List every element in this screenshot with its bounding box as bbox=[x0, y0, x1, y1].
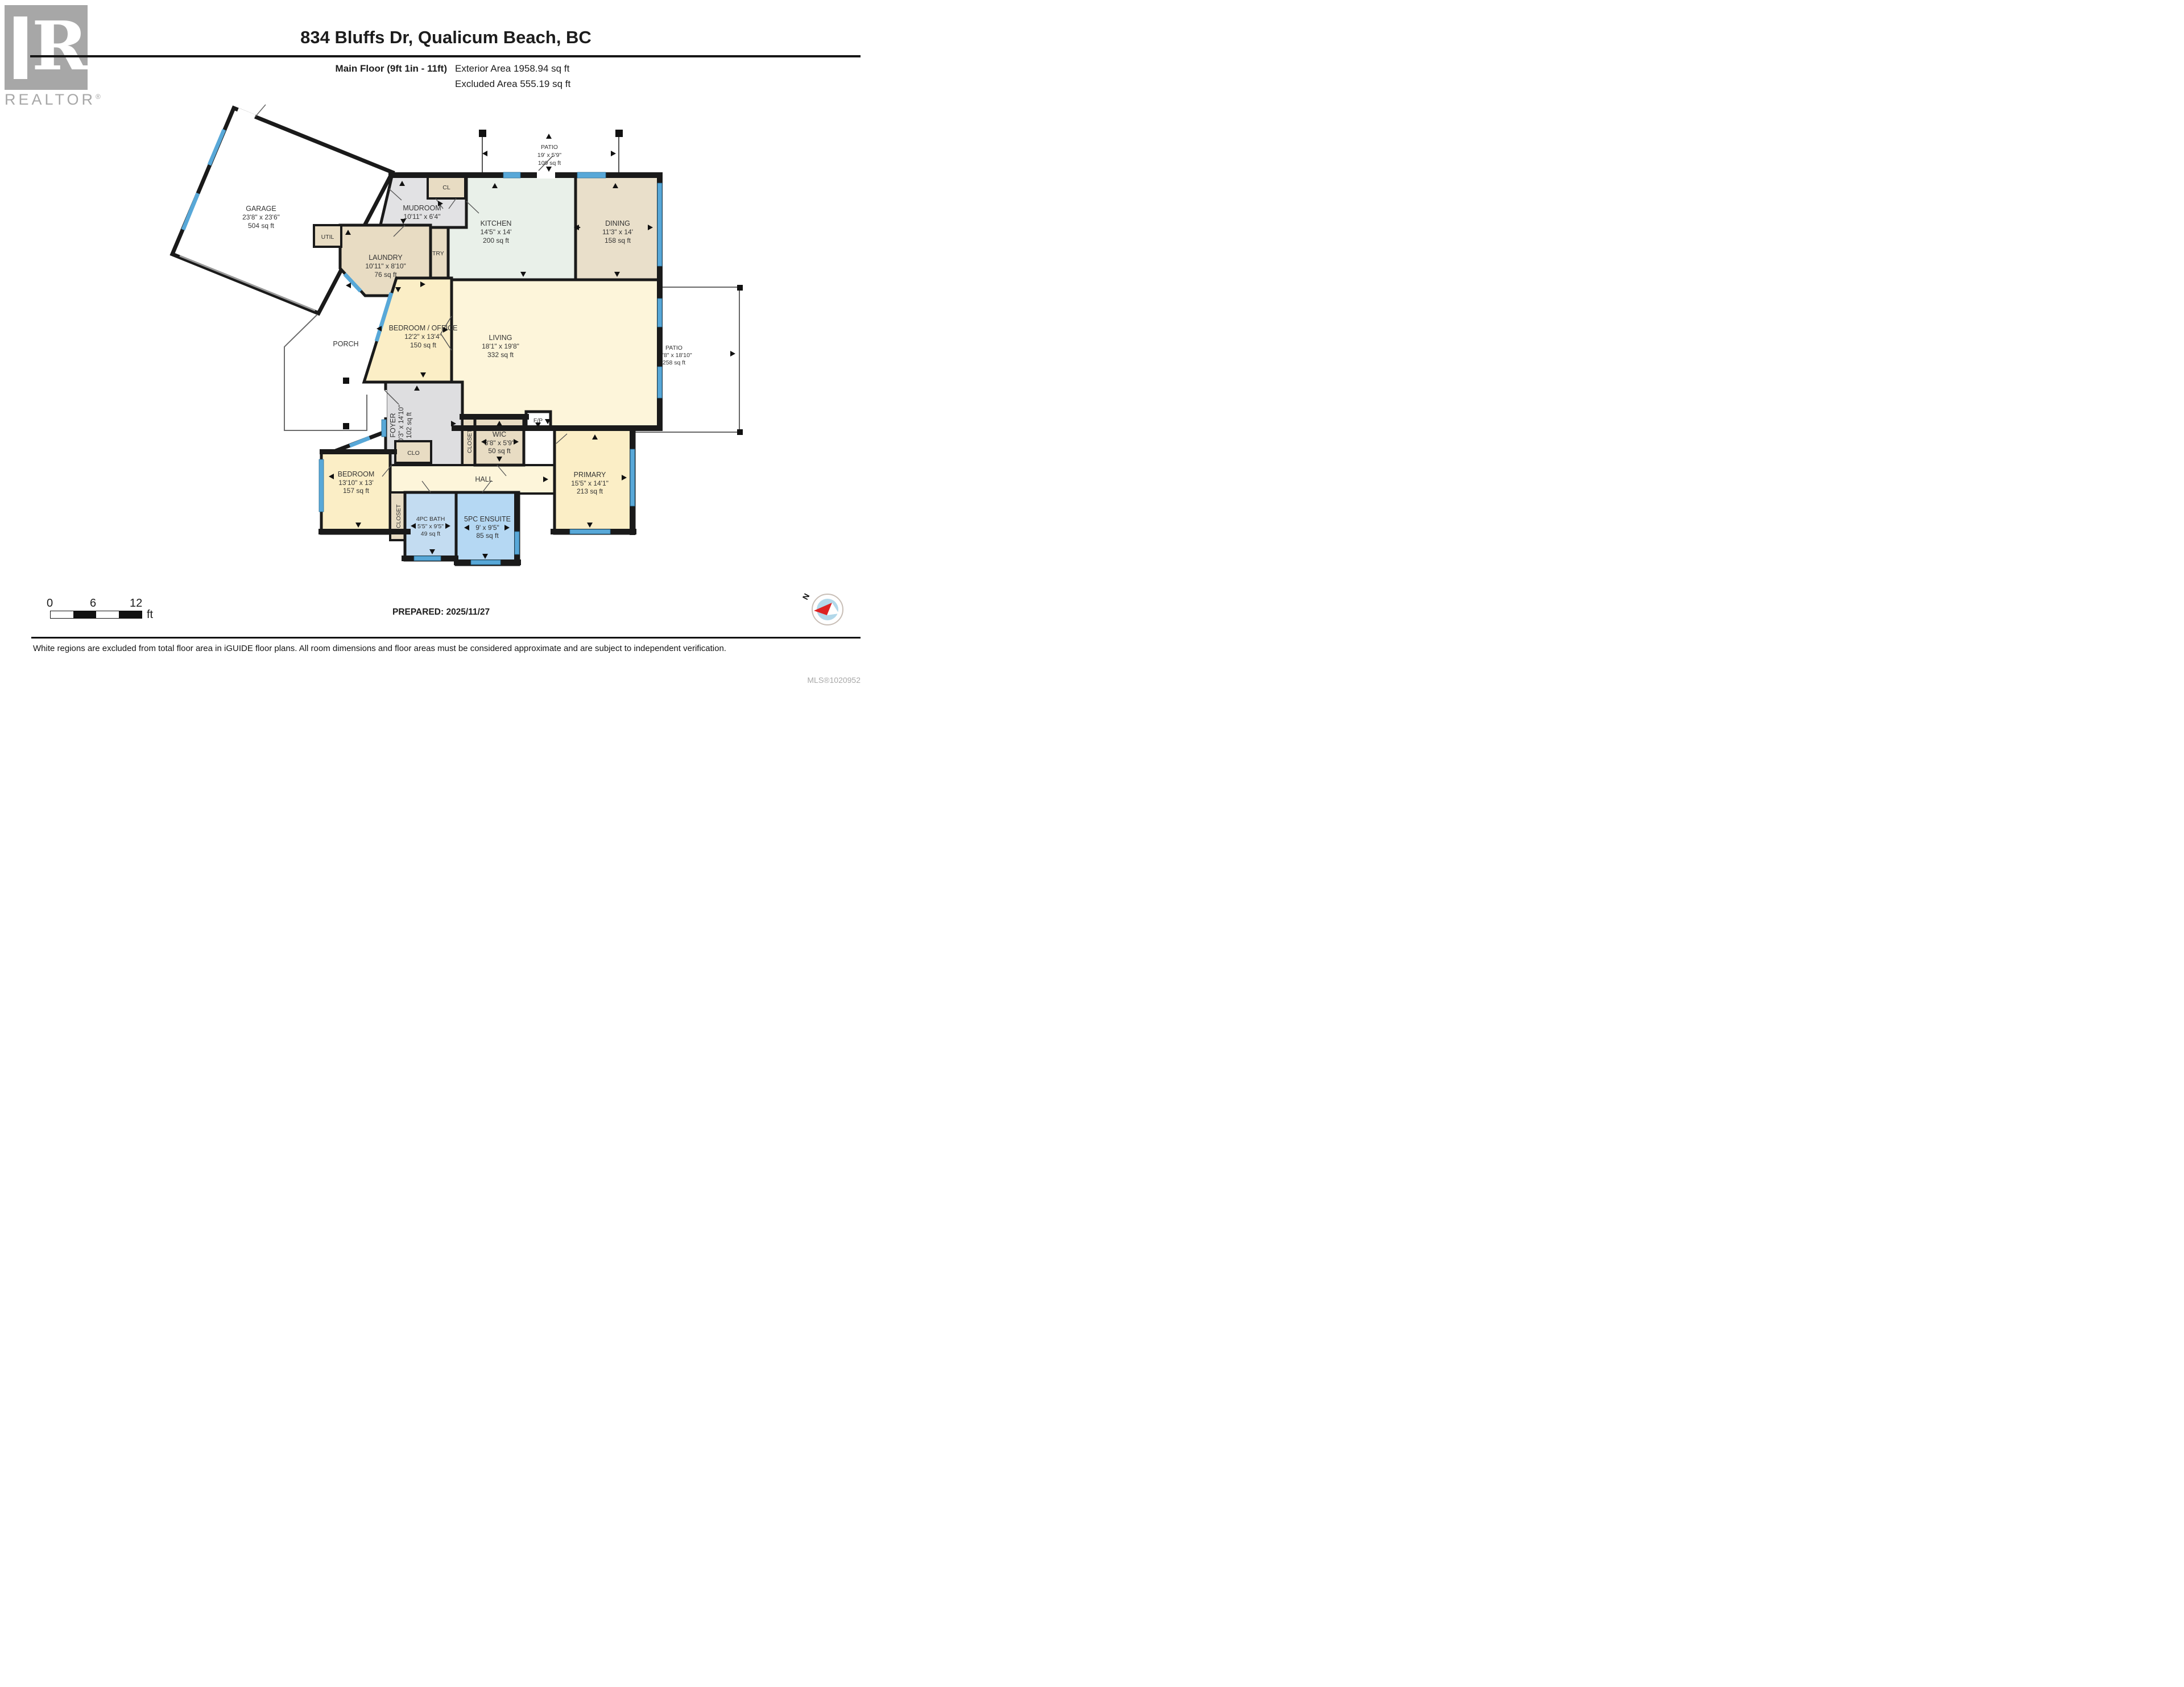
room-dims-garage: 23'8" x 23'6" bbox=[242, 213, 280, 221]
door-gap-patio bbox=[537, 172, 555, 179]
scale-unit: ft bbox=[147, 608, 153, 621]
room-label-foyer: FOYER bbox=[389, 413, 397, 437]
patio-corner bbox=[479, 130, 486, 137]
disclaimer-text: White regions are excluded from total fl… bbox=[33, 644, 863, 653]
hall-floor bbox=[386, 465, 555, 494]
patio-corner bbox=[737, 429, 743, 435]
scale-bar bbox=[50, 611, 142, 619]
scale-tick-6: 6 bbox=[90, 597, 96, 610]
room-label-bedroom: BEDROOM bbox=[338, 470, 375, 478]
room-label-mudroom: MUDROOM bbox=[403, 204, 441, 212]
wall-bedroom-bottom bbox=[318, 529, 411, 534]
window-living-right bbox=[657, 367, 662, 398]
scale-tick-12: 12 bbox=[130, 597, 142, 610]
window bbox=[350, 438, 370, 446]
floor-plan-page: R REALTOR® 834 Bluffs Dr, Qualicum Beach… bbox=[0, 0, 892, 689]
room-label-clo: CLO bbox=[407, 450, 420, 457]
wall-top bbox=[388, 172, 663, 178]
room-label-bedroom-office: BEDROOM / OFFICE bbox=[389, 324, 458, 332]
room-area-laundry: 76 sq ft bbox=[374, 271, 397, 279]
room-label-cl: CL bbox=[442, 184, 450, 191]
window-ensuite-right bbox=[515, 532, 519, 554]
patio-corner bbox=[615, 130, 623, 137]
footer-divider bbox=[31, 637, 861, 639]
room-label-wic: WIC bbox=[493, 430, 506, 438]
room-porch: PORCH bbox=[284, 314, 367, 430]
room-area-bedroom: 157 sq ft bbox=[343, 487, 370, 495]
room-living: LIVING 18'1" x 19'8" 332 sq ft bbox=[452, 280, 661, 429]
room-dims-dining: 11'3" x 14' bbox=[602, 228, 633, 236]
room-dims-patio-top: 19' x 5'9" bbox=[537, 152, 561, 159]
room-area-garage: 504 sq ft bbox=[248, 222, 275, 230]
room-label-living: LIVING bbox=[489, 334, 512, 342]
scale-seg bbox=[51, 611, 73, 618]
window-bath-bottom bbox=[414, 556, 441, 561]
room-area-patio-right: 258 sq ft bbox=[663, 359, 685, 366]
scale-seg bbox=[73, 611, 96, 618]
room-label-garage: GARAGE bbox=[246, 205, 276, 213]
room-area-bedroom-office: 150 sq ft bbox=[410, 341, 437, 349]
room-label-bath: 4PC BATH bbox=[416, 516, 445, 523]
room-hall: HALL bbox=[386, 465, 555, 494]
window-primary-bottom bbox=[570, 529, 610, 534]
room-label-closet-wic: CLOSET bbox=[466, 429, 473, 453]
wall-bedroom-top bbox=[320, 449, 397, 454]
room-label-dining: DINING bbox=[605, 219, 630, 227]
room-closet-wic: CLOSET bbox=[462, 417, 475, 465]
room-cl: CL bbox=[428, 176, 465, 198]
window-living-right bbox=[657, 299, 662, 327]
room-label-porch: PORCH bbox=[333, 340, 358, 348]
porch-post bbox=[343, 423, 349, 429]
compass: N bbox=[799, 581, 854, 636]
porch-outline bbox=[284, 314, 367, 430]
room-dims-ensuite: 9' x 9'5" bbox=[475, 524, 499, 532]
window-dining-right bbox=[657, 183, 662, 266]
room-patio-top: PATIO 19' x 5'9" 109 sq ft bbox=[479, 130, 623, 172]
scale-seg bbox=[96, 611, 119, 618]
window-dining-top bbox=[577, 172, 606, 178]
room-dims-laundry: 10'11" x 8'10" bbox=[365, 262, 406, 270]
window-kitchen-top bbox=[503, 172, 520, 178]
door-gap-front bbox=[381, 390, 387, 417]
scale-tick-0: 0 bbox=[47, 597, 53, 610]
window-bedroom-left bbox=[319, 459, 324, 512]
room-label-patio-top: PATIO bbox=[541, 144, 558, 151]
room-dims-foyer: 10'3" x 14'10" bbox=[397, 405, 405, 446]
room-dims-bath: 5'5" x 9'5" bbox=[417, 523, 444, 530]
patio-corner bbox=[737, 285, 743, 291]
porch-post bbox=[343, 378, 349, 384]
door-leaf bbox=[255, 105, 266, 117]
room-area-bath: 49 sq ft bbox=[421, 530, 441, 537]
room-dims-mudroom: 10'11" x 6'4" bbox=[404, 213, 441, 221]
room-area-primary: 213 sq ft bbox=[577, 487, 603, 495]
room-util: UTIL bbox=[314, 225, 341, 247]
room-area-dining: 158 sq ft bbox=[605, 237, 631, 244]
window-ensuite-bottom bbox=[471, 560, 500, 565]
prepared-date: PREPARED: 2025/11/27 bbox=[392, 607, 490, 617]
compass-n-label: N bbox=[801, 592, 812, 601]
room-label-laundry: LAUNDRY bbox=[369, 254, 403, 262]
room-area-foyer: 102 sq ft bbox=[405, 412, 413, 438]
room-area-patio-top: 109 sq ft bbox=[538, 160, 561, 167]
room-dims-bedroom: 13'10" x 13' bbox=[338, 479, 374, 487]
room-label-closet-bath: CLOSET bbox=[395, 504, 402, 528]
wall-wic-top bbox=[460, 414, 529, 420]
room-dims-primary: 15'5" x 14'1" bbox=[571, 479, 609, 487]
room-dims-living: 18'1" x 19'8" bbox=[482, 342, 519, 350]
room-area-living: 332 sq ft bbox=[487, 351, 514, 359]
room-area-ensuite: 85 sq ft bbox=[476, 532, 499, 540]
room-area-kitchen: 200 sq ft bbox=[483, 237, 510, 244]
living-floor bbox=[452, 280, 661, 429]
room-label-kitchen: KITCHEN bbox=[481, 219, 512, 227]
room-label-ensuite: 5PC ENSUITE bbox=[464, 515, 511, 523]
room-dims-bedroom-office: 12'2" x 13'4" bbox=[404, 333, 442, 341]
room-ensuite: 5PC ENSUITE 9' x 9'5" 85 sq ft bbox=[456, 492, 519, 565]
room-label-util: UTIL bbox=[321, 234, 334, 241]
room-primary: PRIMARY 15'5" x 14'1" 213 sq ft bbox=[555, 429, 634, 533]
room-label-patio-right: PATIO bbox=[665, 345, 682, 351]
floor-plan-canvas: GARAGE 23'8" x 23'6" 504 sq ft PORCH PAT… bbox=[0, 0, 892, 689]
room-area-wic: 50 sq ft bbox=[488, 447, 511, 455]
room-dims-wic: 8'8" x 5'9" bbox=[485, 439, 514, 447]
scale-seg bbox=[119, 611, 142, 618]
window-primary-right bbox=[630, 449, 635, 506]
room-bedroom: BEDROOM 13'10" x 13' 157 sq ft bbox=[321, 452, 390, 533]
mls-number: MLS®1020952 bbox=[756, 675, 861, 685]
room-label-primary: PRIMARY bbox=[574, 471, 606, 479]
window-foyer bbox=[382, 420, 386, 437]
room-dims-kitchen: 14'5" x 14' bbox=[481, 228, 512, 236]
room-clo: CLO bbox=[395, 441, 431, 463]
